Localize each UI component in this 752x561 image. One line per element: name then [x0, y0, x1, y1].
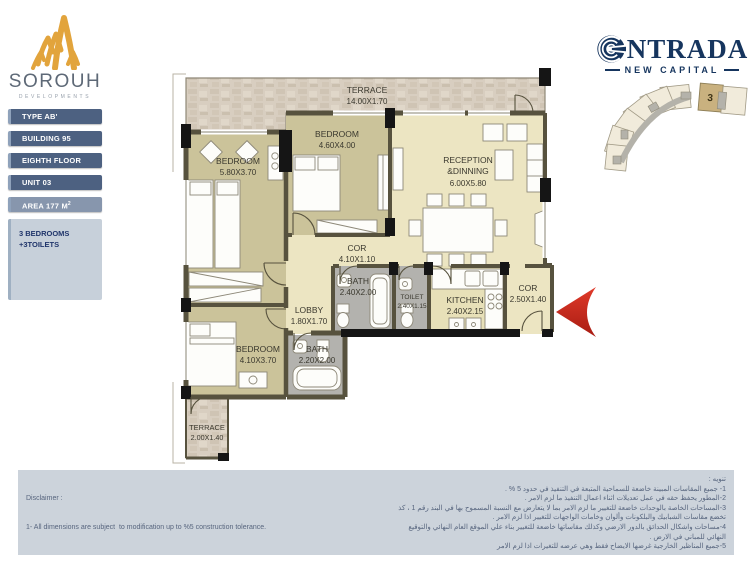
svg-text:BEDROOM: BEDROOM: [315, 129, 359, 139]
summary-toilets: +3TOILETS: [19, 239, 102, 250]
sorouh-logo: SOROUH DEVELOPMENTS: [8, 12, 102, 100]
entrada-subtitle: NEW CAPITAL: [625, 65, 720, 75]
svg-text:2.00X1.40: 2.00X1.40: [191, 433, 224, 442]
svg-text:2.50X1.40: 2.50X1.40: [510, 295, 547, 304]
svg-text:TERRACE: TERRACE: [189, 423, 225, 432]
svg-text:BATH: BATH: [306, 344, 328, 354]
svg-text:2.20X2.00: 2.20X2.00: [299, 356, 336, 365]
keyplan-highlight-block: 3: [698, 83, 747, 115]
svg-text:4.60X4.00: 4.60X4.00: [319, 141, 356, 150]
svg-text:2.40X1.15: 2.40X1.15: [397, 303, 427, 310]
sidebar: SOROUH DEVELOPMENTS TYPE AB' BUILDING 95…: [8, 10, 102, 300]
svg-text:4.10X1.10: 4.10X1.10: [339, 255, 376, 264]
svg-text:BATH: BATH: [347, 276, 369, 286]
floorplan-sheet: SOROUH DEVELOPMENTS TYPE AB' BUILDING 95…: [0, 0, 752, 561]
svg-text:TOILET: TOILET: [401, 294, 424, 301]
svg-text:COR: COR: [348, 243, 367, 253]
tag-building: BUILDING 95: [8, 131, 102, 146]
disclaimer-arabic: تنويه : 1- جميع المقاسات المبينة خاضعة ل…: [398, 475, 726, 551]
svg-text:BEDROOM: BEDROOM: [236, 344, 280, 354]
floor-plan: TERRACE 14.00X1.70 BEDROOM 5.80X3.70 BED…: [165, 60, 635, 470]
brand-subtitle: DEVELOPMENTS: [8, 94, 102, 100]
disclaimer-panel: Disclaimer : 1- All dimensions are subje…: [18, 470, 734, 555]
svg-text:COR: COR: [519, 283, 538, 293]
svg-text:14.00X1.70: 14.00X1.70: [347, 97, 388, 106]
svg-text:BEDROOM: BEDROOM: [216, 156, 260, 166]
svg-text:1.80X1.70: 1.80X1.70: [291, 317, 328, 326]
tag-unit: UNIT 03: [8, 175, 102, 190]
tag-type: TYPE AB': [8, 109, 102, 124]
summary-bedrooms: 3 BEDROOMS: [19, 228, 102, 239]
svg-text:&DINNING: &DINNING: [447, 166, 489, 176]
svg-text:6.00X5.80: 6.00X5.80: [450, 179, 487, 188]
disclaimer-english: Disclaimer : 1- All dimensions are subje…: [26, 475, 398, 551]
dash-line: [724, 69, 739, 71]
svg-text:2.40X2.15: 2.40X2.15: [447, 307, 484, 316]
svg-text:LOBBY: LOBBY: [295, 305, 324, 315]
unit-summary-panel: 3 BEDROOMS +3TOILETS: [8, 219, 102, 300]
sorouh-peaks-icon: [24, 12, 86, 70]
svg-text:TERRACE: TERRACE: [347, 85, 388, 95]
brand-name: SOROUH: [8, 71, 102, 93]
svg-text:RECEPTION: RECEPTION: [443, 155, 493, 165]
tag-floor: EIGHTH FLOOR: [8, 153, 102, 168]
tag-area: AREA 177 M2: [8, 197, 102, 212]
entrance-arrow-icon: [556, 287, 596, 337]
svg-text:2.40X2.00: 2.40X2.00: [340, 288, 377, 297]
svg-text:KITCHEN: KITCHEN: [446, 295, 483, 305]
svg-text:4.10X3.70: 4.10X3.70: [240, 356, 277, 365]
entrada-wordmark: NTRADA: [627, 34, 749, 64]
area-superscript: 2: [68, 201, 71, 207]
svg-text:5.80X3.70: 5.80X3.70: [220, 168, 257, 177]
